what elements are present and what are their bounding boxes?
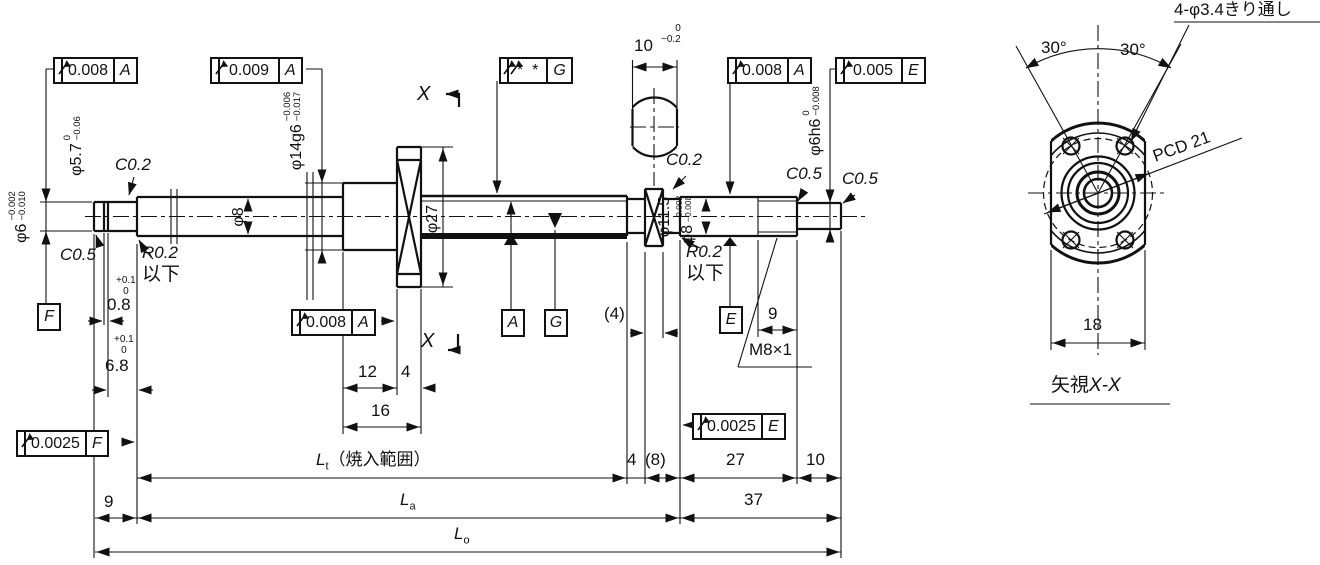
chamfer-note: C0.2 <box>115 155 151 174</box>
dim-lo: Lo <box>454 525 470 546</box>
dim-collar-width: (4) <box>604 305 625 324</box>
chamfer-note: C0.5 <box>786 164 822 183</box>
tol-stack: +0.10 <box>116 276 136 297</box>
runout-icon <box>18 432 26 455</box>
dim-seg4: 4 <box>627 451 636 470</box>
datum-g-triangle <box>548 213 562 228</box>
dim-hub-length: 12 <box>358 363 377 382</box>
drawing-page: 0.008 A 0.009 A * * G 0.008 A 0.005 E 0.… <box>0 0 1320 565</box>
radius-note: R0.2 <box>686 242 722 261</box>
tol-stack: +0.10 <box>114 335 134 356</box>
dia-label-phi11-5: φ11.5 <box>655 189 675 245</box>
or-less-note: 以下 <box>142 265 180 286</box>
dia-label-phi8-left: φ8 <box>229 197 249 237</box>
fcf-datum: A <box>115 59 136 82</box>
fcf-runout-phi6: 0.008 A <box>53 57 138 84</box>
angle-right: 30° <box>1120 41 1146 60</box>
thread-note: M8×1 <box>749 341 792 360</box>
dia-label-phi27: φ27 <box>423 193 443 245</box>
dim-thread-length: 9 <box>768 305 777 324</box>
or-less-note: 以下 <box>686 264 724 285</box>
dim-seg27: 27 <box>726 451 745 470</box>
section-x-top: X <box>417 83 430 105</box>
fcf-datum: F <box>87 432 107 455</box>
fcf-runout-flange: 0.008 A <box>291 309 376 336</box>
chamfer-note: C0.2 <box>666 150 702 169</box>
drawing-canvas <box>0 0 1320 565</box>
view-caption: 矢視X-X <box>1051 376 1121 397</box>
chamfer-note: C0.5 <box>60 245 96 264</box>
datum-e-triangle <box>723 237 737 246</box>
tol-stack: 0−0.2 <box>661 24 681 45</box>
chamfer-note: C0.5 <box>842 169 878 188</box>
dimension-arrows <box>46 25 1189 552</box>
runout-icon <box>55 59 63 82</box>
dim-seg8: (8) <box>645 451 666 470</box>
dia-label-phi14g6: φ14g6 −0.006−0.017 <box>287 83 307 179</box>
section-x-bottom: X <box>421 330 434 352</box>
runout-icon <box>729 59 737 82</box>
dia-label-phi5-7: φ5.7 0−0.06 <box>67 108 87 184</box>
fcf-datum: A <box>280 59 301 82</box>
fcf-datum: E <box>763 415 784 438</box>
runout-icon <box>694 415 702 438</box>
runout-icon <box>212 59 220 82</box>
dia-label-phi6h6: φ6h6 0−0.008 <box>806 81 826 161</box>
dim-hardening-range: Lt（焼入範囲） <box>316 451 431 472</box>
datum-box-g: G <box>544 309 568 337</box>
holes-note: 4-φ3.4きり通し <box>1174 1 1292 20</box>
fcf-runout-groove: * * G <box>499 57 573 84</box>
angle-left: 30° <box>1041 39 1067 58</box>
fcf-datum: A <box>789 59 810 82</box>
datum-box-a: A <box>501 309 525 337</box>
dim-flats-width: 10 <box>634 37 653 56</box>
dim-groove-width: 0.8 <box>107 296 131 315</box>
dim-groove-location: 6.8 <box>105 357 129 376</box>
fcf-runout-end-e: 0.0025 E <box>692 413 786 440</box>
dim-left-end: 9 <box>104 493 113 512</box>
dim-seg37: 37 <box>744 491 763 510</box>
runout-icon <box>837 59 845 82</box>
dim-hub-total: 16 <box>371 402 390 421</box>
fcf-datum: E <box>903 59 924 82</box>
dim-flange-width: 4 <box>401 363 410 382</box>
dim-end-width: 18 <box>1083 316 1102 335</box>
datum-box-e: E <box>719 306 743 334</box>
fcf-runout-end-f: 0.0025 F <box>16 430 109 457</box>
runout-double-icon <box>501 59 509 82</box>
dim-la: La <box>400 491 416 512</box>
dia-label-phi6: φ6 −0.002−0.010 <box>12 182 32 252</box>
fcf-datum: A <box>353 311 374 334</box>
fcf-runout-phi6h6: 0.005 E <box>835 57 926 84</box>
fcf-datum: G <box>548 59 570 82</box>
radius-note: R0.2 <box>142 243 178 262</box>
fcf-runout-phi8: 0.008 A <box>727 57 812 84</box>
runout-icon <box>293 311 301 334</box>
datum-box-f: F <box>37 303 61 331</box>
dim-seg10: 10 <box>806 451 825 470</box>
fcf-runout-phi14: 0.009 A <box>210 57 303 84</box>
